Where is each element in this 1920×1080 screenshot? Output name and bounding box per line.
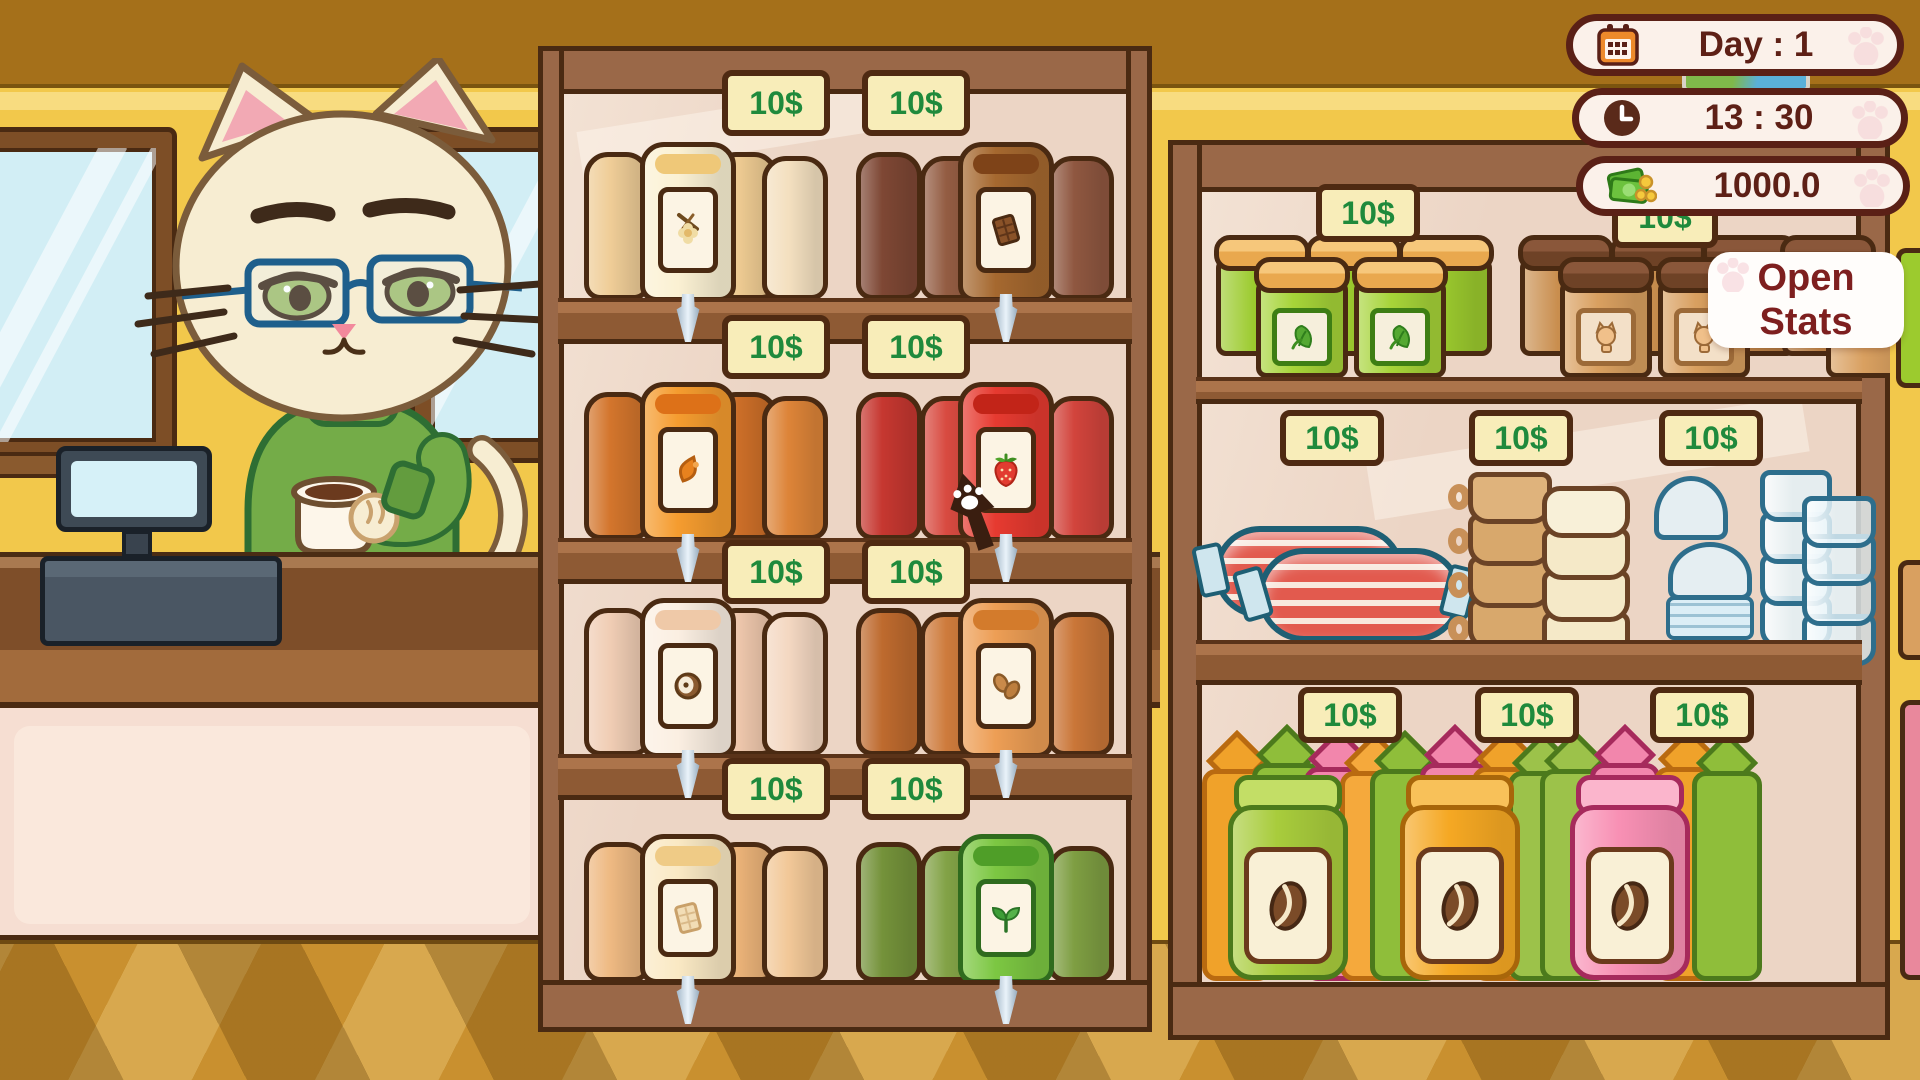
price-tag: 10$ <box>1316 184 1420 242</box>
open-stats-line2: Stats <box>1760 300 1853 344</box>
shelf-board <box>1196 640 1862 685</box>
coffee-bean-icon <box>1586 847 1674 964</box>
syrup-dispenser <box>1048 156 1114 300</box>
barista-cat <box>130 58 550 618</box>
price-tag: 10$ <box>722 70 830 136</box>
jar-leaf-label <box>1354 280 1446 378</box>
product-green-leaf-jars[interactable] <box>1208 245 1498 380</box>
sausage-pack <box>1258 548 1462 642</box>
product-white-chocolate-syrup[interactable] <box>578 834 828 984</box>
open-stats-button[interactable]: Open Stats <box>1708 252 1904 348</box>
cat-face-icon <box>1576 308 1637 366</box>
featured-chocolate-dispenser <box>958 142 1054 302</box>
price-tag: 10$ <box>862 70 970 136</box>
almonds-icon <box>976 643 1036 729</box>
price-tag: 10$ <box>722 315 830 379</box>
clock-icon <box>1601 97 1643 139</box>
open-stats-line1: Open <box>1757 256 1854 300</box>
shelf-frame-top <box>538 46 1152 94</box>
mug-stack <box>1542 486 1630 646</box>
price-tag: 10$ <box>862 315 970 379</box>
cash-register-screen <box>56 446 212 532</box>
product-caramel-syrup[interactable] <box>578 382 828 542</box>
product-almond-syrup[interactable] <box>848 598 1118 758</box>
price-tag: 10$ <box>1469 410 1573 466</box>
price-tag: 10$ <box>862 758 970 820</box>
product-coconut-syrup[interactable] <box>578 598 828 758</box>
plastic-cup-stack <box>1802 496 1876 652</box>
product-chocolate-syrup[interactable] <box>848 142 1118 302</box>
time-panel: 13 : 30 <box>1572 88 1908 148</box>
shelf-board <box>558 754 1132 800</box>
syrup-dispenser <box>762 846 828 982</box>
lid-stack <box>1666 596 1754 640</box>
featured-caramel-dispenser <box>640 382 736 542</box>
featured-white-chocolate-dispenser <box>640 834 736 984</box>
syrup-dispenser <box>1048 396 1114 540</box>
coffee-bag <box>1692 755 1762 981</box>
cat-eyebrow <box>258 209 328 216</box>
price-tag: 10$ <box>722 540 830 604</box>
featured-almond-dispenser <box>958 598 1054 758</box>
mug-stack <box>1468 472 1552 648</box>
featured-vanilla-dispenser <box>640 142 736 302</box>
day-panel: Day : 1 <box>1566 14 1904 76</box>
cat-eyebrow <box>370 205 448 212</box>
caramel-drop-icon <box>658 427 718 513</box>
price-tag: 10$ <box>1280 410 1384 466</box>
jar-leaf-label <box>1256 280 1348 378</box>
calendar-icon <box>1595 22 1641 68</box>
money-icon <box>1605 164 1657 208</box>
shelf-board <box>558 538 1132 584</box>
product-sausage-packs[interactable] <box>1208 470 1468 642</box>
product-stacked-mugs[interactable] <box>1464 470 1644 642</box>
price-tag: 10$ <box>1659 410 1763 466</box>
syrup-shelf: 10$ 10$ 10$ 10$ 10$ 10$ 10$ 10$ <box>538 46 1152 1032</box>
syrup-dispenser <box>1048 846 1114 982</box>
coffee-bean-icon <box>1416 847 1504 964</box>
time-label: 13 : 30 <box>1643 98 1901 138</box>
dome-lid <box>1668 542 1752 600</box>
sprout-icon <box>976 879 1036 957</box>
featured-coffee-bag-green <box>1228 775 1348 980</box>
white-chocolate-bar-icon <box>658 879 718 957</box>
edge-goods-sliver <box>1898 560 1920 660</box>
featured-coconut-dispenser <box>640 598 736 758</box>
money-label: 1000.0 <box>1657 166 1903 206</box>
money-panel: 1000.0 <box>1576 156 1910 216</box>
syrup-dispenser <box>762 156 828 300</box>
product-matcha-syrup[interactable] <box>848 834 1118 984</box>
vanilla-flower-icon <box>658 187 718 273</box>
jar-cat-label <box>1560 280 1652 378</box>
day-label: Day : 1 <box>1641 25 1897 65</box>
edge-goods-sliver <box>1900 700 1920 980</box>
syrup-dispenser <box>1048 612 1114 756</box>
shelf-board <box>558 298 1132 344</box>
syrup-dispenser <box>856 392 922 540</box>
shelf-frame-bottom <box>538 980 1152 1032</box>
syrup-dispenser <box>856 608 922 756</box>
coffee-bean-icon <box>1244 847 1332 964</box>
dome-lid <box>1654 476 1728 540</box>
featured-coffee-bag-orange <box>1400 775 1520 980</box>
price-tag: 10$ <box>1298 687 1402 743</box>
leaf-icon <box>1370 308 1431 366</box>
counter-front <box>0 708 548 940</box>
shelf-board <box>1196 377 1862 404</box>
coconut-icon <box>658 643 718 729</box>
syrup-dispenser <box>762 396 828 540</box>
featured-coffee-bag-pink <box>1570 775 1690 980</box>
game-screen: 10$ 10$ 10$ 10$ 10$ 10$ 10$ 10$ <box>0 0 1920 1080</box>
counter-panel <box>14 726 530 924</box>
featured-matcha-dispenser <box>958 834 1054 984</box>
shelf-frame-bottom <box>1168 982 1890 1040</box>
cash-register[interactable] <box>40 556 282 646</box>
price-tag: 10$ <box>1475 687 1579 743</box>
syrup-dispenser <box>762 612 828 756</box>
syrup-dispenser <box>856 842 922 982</box>
cash-register-stand <box>122 530 152 558</box>
syrup-dispenser <box>856 152 922 300</box>
product-plastic-cups-lids[interactable] <box>1648 470 1888 642</box>
price-tag: 10$ <box>722 758 830 820</box>
product-coffee-bag-pink[interactable] <box>1538 745 1758 982</box>
chocolate-bar-icon <box>976 187 1036 273</box>
leaf-icon <box>1272 308 1333 366</box>
product-vanilla-syrup[interactable] <box>578 142 828 302</box>
price-tag: 10$ <box>1650 687 1754 743</box>
